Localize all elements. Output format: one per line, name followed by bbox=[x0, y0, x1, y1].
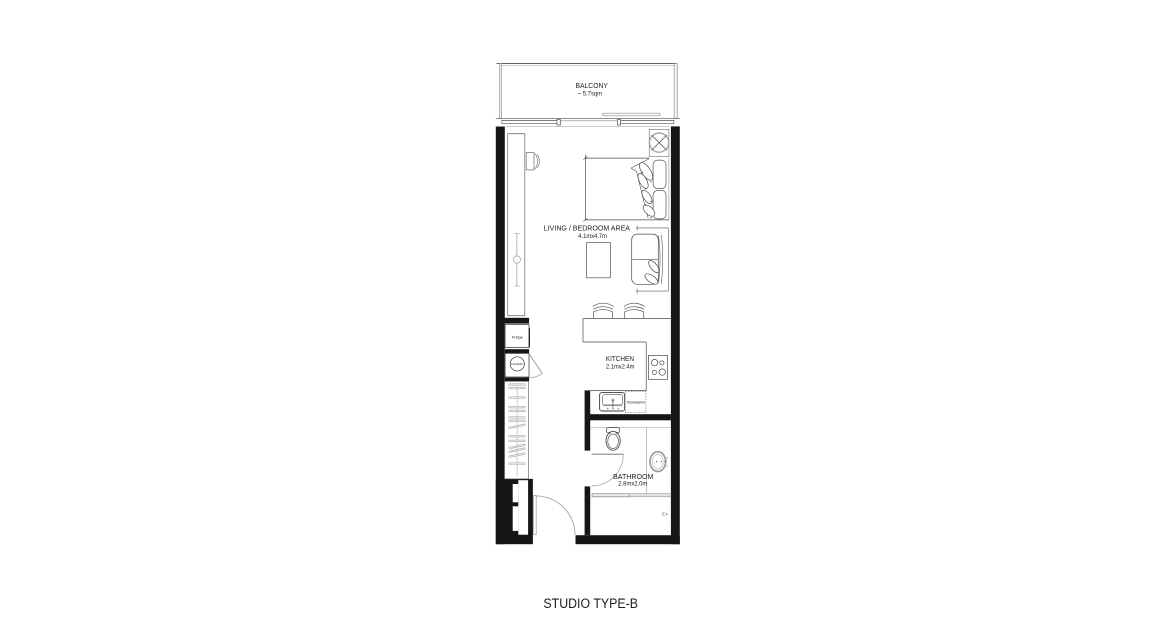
svg-text:LAUNDRY: LAUNDRY bbox=[511, 362, 524, 366]
svg-text:Dishwasher: Dishwasher bbox=[627, 400, 646, 404]
svg-text:2.8mx2.0m: 2.8mx2.0m bbox=[618, 480, 647, 487]
svg-text:BALCONY: BALCONY bbox=[576, 83, 609, 90]
svg-text:Fridge: Fridge bbox=[512, 335, 523, 339]
svg-text:~ 5.7sqm: ~ 5.7sqm bbox=[578, 92, 602, 98]
svg-text:STUDIO TYPE-B: STUDIO TYPE-B bbox=[543, 596, 638, 612]
svg-text:4.1mx4.7m: 4.1mx4.7m bbox=[578, 233, 607, 240]
svg-text:KITCHEN: KITCHEN bbox=[606, 356, 634, 363]
svg-text:2.1mx2.4m: 2.1mx2.4m bbox=[606, 363, 634, 370]
svg-text:LIVING / BEDROOM AREA: LIVING / BEDROOM AREA bbox=[544, 224, 630, 232]
